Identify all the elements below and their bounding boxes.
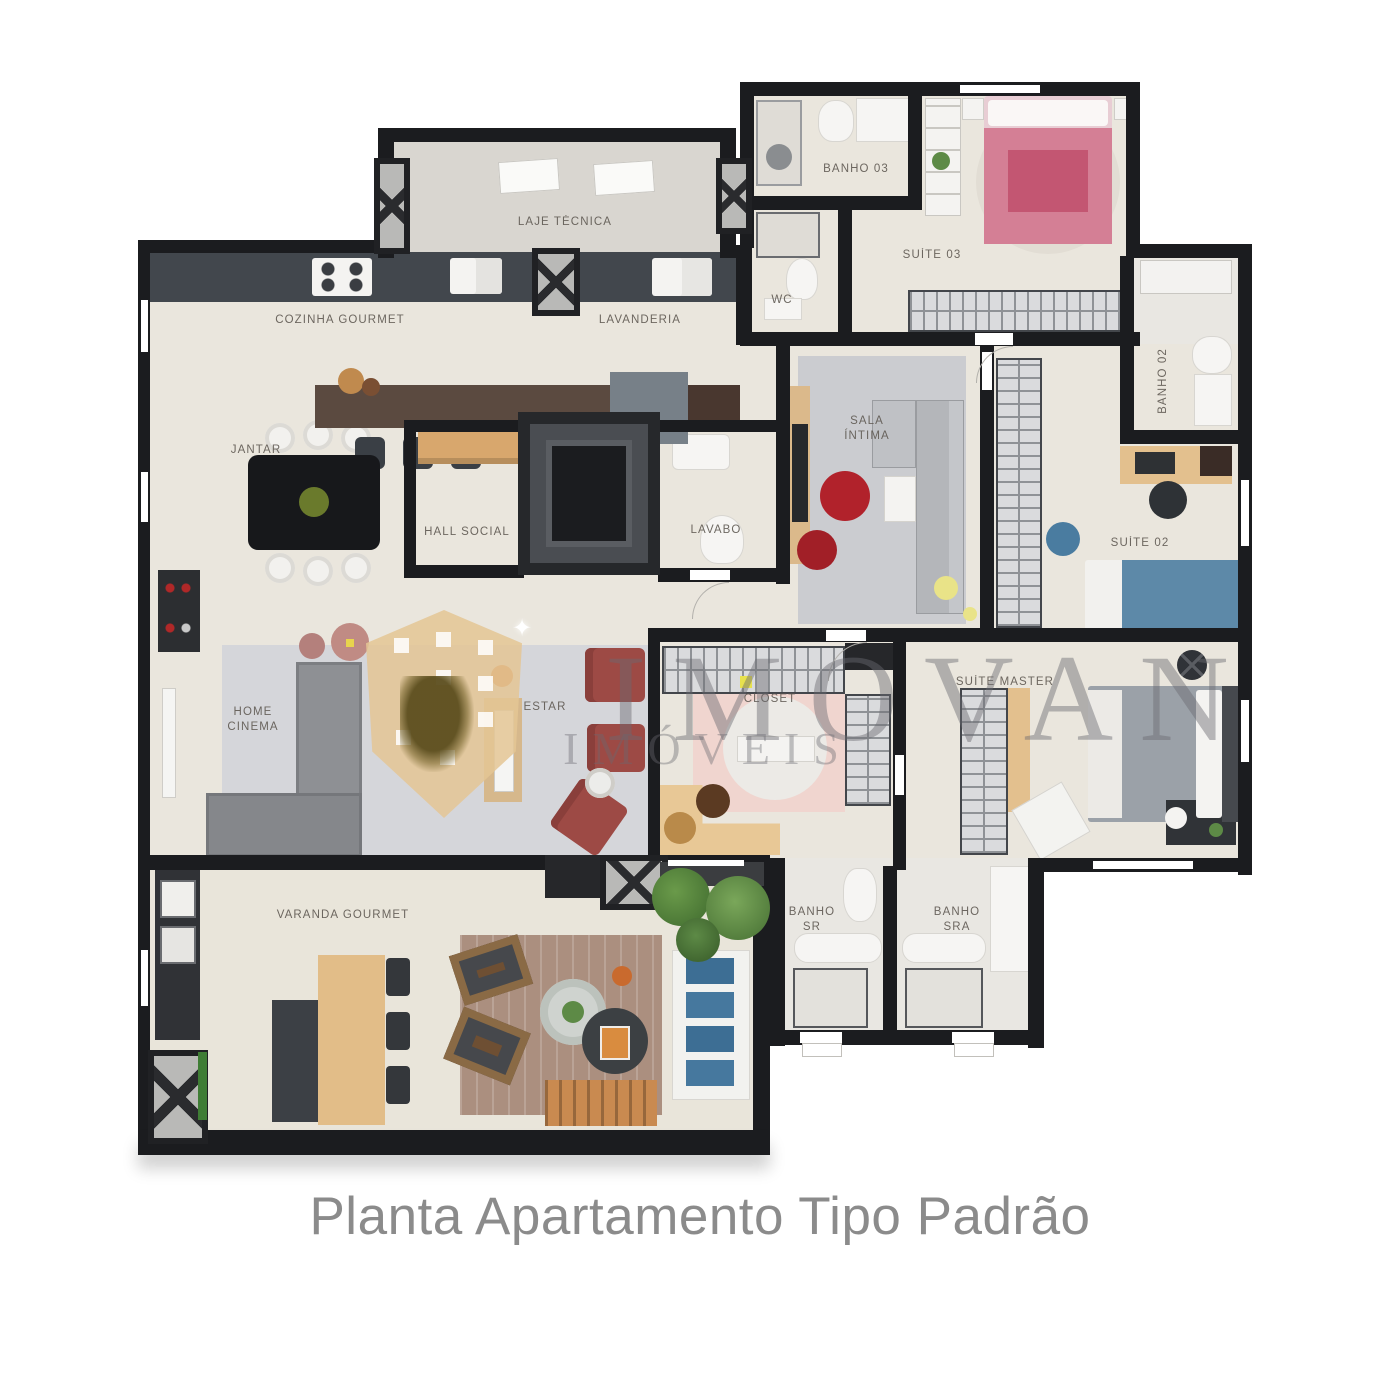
wall <box>1120 430 1252 444</box>
banho02-toilet-icon <box>1192 336 1232 374</box>
dining-centerpiece <box>299 487 329 517</box>
room-label-line: HOME <box>234 706 273 718</box>
appliance-microwave-icon <box>160 926 196 964</box>
hc-pouf-mauve-1 <box>299 633 325 659</box>
wc-shower <box>756 212 820 258</box>
varanda-plant-3 <box>676 918 720 962</box>
varanda-sofa-cushion-2 <box>686 992 734 1018</box>
coffee-decor-2 <box>362 378 380 396</box>
window-left-2 <box>141 472 148 522</box>
watermark-shield-window <box>478 712 493 727</box>
door-gap-banho-sr <box>800 1032 842 1043</box>
watermark-subtitle-text: IMÓVEIS <box>548 722 868 775</box>
room-label-lavanderia: LAVANDERIA <box>599 314 681 326</box>
room-label-suite02: SUÍTE 02 <box>1111 537 1170 549</box>
room-label-suite03: SUÍTE 03 <box>903 249 962 261</box>
room-label-line: SALA <box>850 415 884 427</box>
varanda-dining-table <box>318 955 385 1125</box>
room-label-banho-sr: BANHO SR <box>789 905 835 935</box>
wall <box>404 420 416 578</box>
green-panel <box>198 1052 207 1120</box>
window-xbox-laje-right <box>716 158 752 234</box>
window-left-3 <box>141 950 148 1006</box>
wall <box>740 332 1140 346</box>
varanda-slat-bench <box>545 1080 657 1126</box>
room-label-jantar: JANTAR <box>231 444 281 456</box>
wall <box>138 1130 770 1155</box>
hc-sofa-vertical <box>296 662 362 802</box>
wall <box>838 205 852 335</box>
wall <box>770 858 785 1046</box>
varanda-glass-table-plant <box>562 1001 584 1023</box>
room-label-varanda: VARANDA GOURMET <box>277 909 410 921</box>
banho02-vanity <box>1194 374 1232 426</box>
wall <box>752 196 922 210</box>
room-label-line: BANHO <box>934 906 980 918</box>
lavabo-toilet-icon <box>700 515 744 564</box>
room-label-wc: WC <box>771 294 792 306</box>
master-plant-icon <box>1209 823 1223 837</box>
elevator-cab <box>546 440 632 547</box>
suite02-desk-laptop <box>1135 452 1175 474</box>
banho-sra-shower <box>905 968 983 1028</box>
watermark-shield-window <box>394 638 409 653</box>
wall <box>1126 96 1140 256</box>
watermark-shield-window <box>478 640 493 655</box>
wall <box>736 245 752 345</box>
sala-pouf-yellow-small <box>963 607 977 621</box>
window <box>960 85 1040 93</box>
door-gap-suite03 <box>975 333 1013 345</box>
varanda-chair-2 <box>386 1012 410 1050</box>
hall-bench-icon <box>418 432 524 464</box>
wall <box>404 565 524 578</box>
varanda-chair-3 <box>386 1066 410 1104</box>
closet-chair-icon <box>696 784 730 818</box>
kitchen-sink-icon <box>450 258 502 294</box>
laje-skylight-2 <box>593 160 655 196</box>
room-label-laje-tecnica: LAJE TÉCNICA <box>518 216 612 228</box>
room-label-estar: ESTAR <box>524 701 567 713</box>
room-label-sala-intima: SALA ÍNTIMA <box>844 414 890 444</box>
door-leaf <box>802 1043 842 1057</box>
window-master-bottom <box>1093 861 1193 869</box>
room-label-line: CINEMA <box>227 721 278 733</box>
sala-pouf-red-1 <box>820 471 870 521</box>
wall <box>740 82 1140 96</box>
watermark-shield-blob <box>400 676 474 772</box>
hc-sofa-horizontal <box>206 793 362 857</box>
room-label-home-cinema: HOME CINEMA <box>227 705 278 735</box>
hc-lamp-icon <box>346 639 354 647</box>
watermark-shield-window <box>436 632 451 647</box>
room-label-line: SR <box>803 921 821 933</box>
banho-sr-vanity <box>794 933 882 963</box>
room-label-hall-social: HALL SOCIAL <box>424 526 510 538</box>
window-left-1 <box>141 300 148 352</box>
room-label-cozinha: COZINHA GOURMET <box>275 314 405 326</box>
coffee-decor <box>338 368 364 394</box>
stove-icon <box>312 258 372 296</box>
varanda-sofa-cushion-1 <box>686 958 734 984</box>
suite03-bed-throw <box>1008 150 1088 212</box>
wall <box>1238 244 1252 875</box>
plan-caption: Planta Apartamento Tipo Padrão <box>309 1186 1090 1247</box>
watermark-shield-window <box>478 676 493 691</box>
room-label-banho-sra: BANHO SRA <box>934 905 980 935</box>
laje-skylight-1 <box>498 158 560 194</box>
door-gap-lavabo <box>690 570 730 580</box>
banho03-vanity <box>856 98 916 142</box>
master-side-table <box>1165 807 1187 829</box>
door-gap-banho-sra <box>952 1032 994 1043</box>
suite03-wardrobe <box>908 290 1122 332</box>
window <box>1241 480 1249 546</box>
varanda-sofa-cushion-3 <box>686 1026 734 1052</box>
suite02-wardrobe <box>996 358 1042 628</box>
suite02-desk-cabinet <box>1200 446 1232 476</box>
watermark-sparkle: ✦ <box>512 614 532 643</box>
wall <box>980 346 994 640</box>
suite03-nightstand-left <box>962 98 984 120</box>
varanda-sideboard <box>272 1000 322 1122</box>
wall <box>883 866 897 1030</box>
room-label-line: ÍNTIMA <box>844 430 890 442</box>
room-label-line: BANHO <box>789 906 835 918</box>
window-xbox-laje-left <box>374 158 410 254</box>
banho-sr-toilet-icon <box>843 868 877 922</box>
suite03-bed-pillows <box>988 100 1108 126</box>
door-leaf <box>954 1043 994 1057</box>
washer-dryer-icon <box>652 258 712 296</box>
banho03-toilet-icon <box>818 100 854 142</box>
appliance-oven-icon <box>160 880 196 918</box>
wall <box>1126 244 1252 258</box>
dining-chair <box>265 553 295 583</box>
varanda-poster-decor <box>600 1026 630 1060</box>
banho-sra-cabinet <box>990 866 1030 972</box>
sliding-door-varanda <box>668 860 744 866</box>
wall <box>378 128 736 142</box>
sala-coffee-table <box>884 476 916 522</box>
suite02-chair-icon <box>1149 481 1187 519</box>
banho03-shower <box>756 100 802 186</box>
sala-tv-icon <box>792 424 808 522</box>
dining-chair <box>303 556 333 586</box>
wine-cabinet-icon <box>158 570 200 652</box>
wall <box>908 96 922 208</box>
sala-pouf-yellow <box>934 576 958 600</box>
room-label-lavabo: LAVABO <box>691 524 742 536</box>
floorplan-image: LAJE TÉCNICA COZINHA GOURMET LAVANDERIA … <box>0 0 1400 1391</box>
suite03-plant-icon <box>932 152 950 170</box>
banho02-shower <box>1140 260 1232 294</box>
wall <box>138 240 150 1155</box>
banho-sr-shower <box>793 968 868 1028</box>
closet-rattan-decor <box>664 812 696 844</box>
room-label-line: SRA <box>944 921 971 933</box>
varanda-chair-1 <box>386 958 410 996</box>
varanda-orange-decor <box>612 966 632 986</box>
wall <box>138 240 390 253</box>
banho-sra-vanity <box>902 933 986 963</box>
varanda-top-dark-block <box>545 855 601 898</box>
dining-chair <box>341 553 371 583</box>
shaft-xbox-kitchen <box>532 248 580 316</box>
suite02-pouf-blue <box>1046 522 1080 556</box>
wall <box>1028 858 1044 1048</box>
sala-pouf-red-2 <box>797 530 837 570</box>
room-label-banho03: BANHO 03 <box>823 163 889 175</box>
room-label-banho02: BANHO 02 <box>1157 348 1169 414</box>
home-cinema-tv-icon <box>162 688 176 798</box>
banho03-plant-icon <box>766 144 792 170</box>
wall <box>776 346 790 584</box>
suite02-bed-blanket <box>1122 560 1238 630</box>
varanda-sofa-cushion-4 <box>686 1060 734 1086</box>
